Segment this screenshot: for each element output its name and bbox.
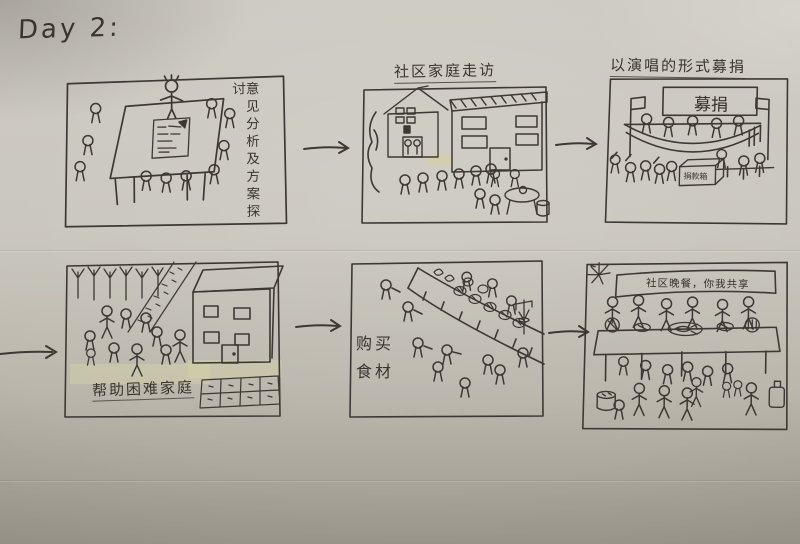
trees-sketch bbox=[72, 267, 163, 300]
panel5-caption-line2: 食材 bbox=[356, 358, 394, 382]
soup-pot-sketch bbox=[769, 381, 784, 407]
flow-arrow-5 bbox=[545, 320, 597, 344]
panel1-caption: 意见分析及方案探讨 bbox=[230, 81, 258, 223]
seated-figures bbox=[75, 99, 236, 193]
firework-icon bbox=[588, 263, 610, 284]
presenter-figure bbox=[160, 75, 182, 118]
family-visits-sketch bbox=[360, 84, 550, 226]
bush-sketch bbox=[368, 112, 379, 192]
big-building-sketch bbox=[450, 92, 547, 172]
round-table-sketch bbox=[505, 187, 549, 217]
dishes-sketch bbox=[605, 316, 759, 337]
tiles-sketch bbox=[200, 376, 280, 408]
panel-help-needy-families: 帮助困难家庭 bbox=[62, 258, 284, 420]
panel-family-visits bbox=[360, 84, 550, 226]
panel5-caption-line1: 购买 bbox=[356, 330, 394, 354]
flow-arrow-3 bbox=[0, 340, 64, 364]
panel-buy-ingredients: 购买 食材 bbox=[348, 258, 546, 420]
panel-meeting-discussion: 意见分析及方案探讨 bbox=[61, 73, 290, 231]
flow-arrow-4 bbox=[292, 314, 348, 338]
flow-arrow-1 bbox=[300, 136, 356, 160]
storyboard-photo: Day 2: bbox=[0, 0, 800, 544]
document-sketch bbox=[152, 118, 190, 158]
panel4-caption: 帮助困难家庭 bbox=[92, 376, 195, 402]
paper-crease bbox=[0, 480, 800, 482]
barrel-sketch bbox=[597, 391, 615, 410]
performer-figures bbox=[641, 114, 743, 138]
panel-community-dinner: 社区晚餐，你我共享 bbox=[579, 255, 793, 434]
house-sketch bbox=[193, 266, 283, 363]
panel-singing-fundraiser: 募捐 捐款箱 bbox=[602, 72, 791, 228]
long-table-sketch bbox=[593, 325, 780, 384]
stage-banner-label: 募捐 bbox=[667, 88, 756, 116]
paper-crease bbox=[0, 250, 800, 252]
reaching-arms bbox=[392, 288, 461, 354]
scale-sketch bbox=[516, 300, 532, 334]
dinner-banner-label: 社区晚餐，你我共享 bbox=[623, 272, 773, 294]
day-label: Day 2: bbox=[17, 13, 121, 46]
correction-patch bbox=[426, 154, 454, 166]
diner-figures-front bbox=[614, 357, 759, 421]
small-house-sketch bbox=[384, 86, 448, 157]
panel2-caption: 社区家庭走访 bbox=[394, 59, 496, 84]
donation-box-label: 捐款箱 bbox=[683, 171, 715, 183]
flow-arrow-2 bbox=[552, 132, 604, 156]
